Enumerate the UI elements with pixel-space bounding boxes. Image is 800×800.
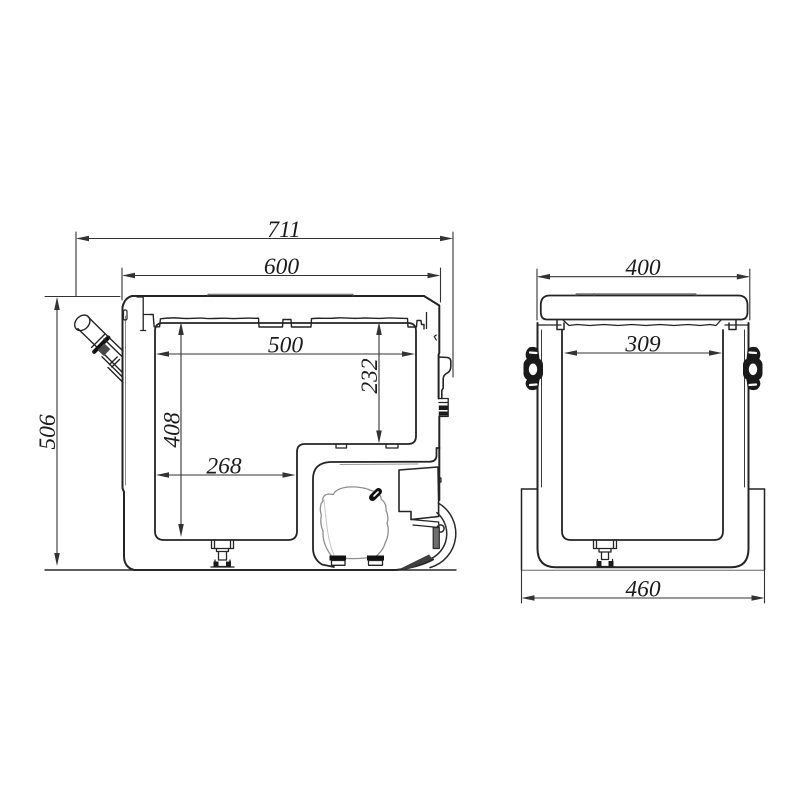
svg-text:232: 232 [357, 358, 383, 394]
svg-text:711: 711 [267, 217, 301, 243]
svg-text:600: 600 [264, 254, 300, 280]
svg-text:460: 460 [625, 576, 661, 602]
svg-text:309: 309 [624, 332, 661, 358]
svg-text:506: 506 [35, 414, 61, 450]
svg-text:400: 400 [625, 255, 661, 281]
svg-text:268: 268 [206, 453, 242, 479]
svg-text:408: 408 [160, 412, 186, 448]
svg-text:500: 500 [268, 332, 304, 358]
